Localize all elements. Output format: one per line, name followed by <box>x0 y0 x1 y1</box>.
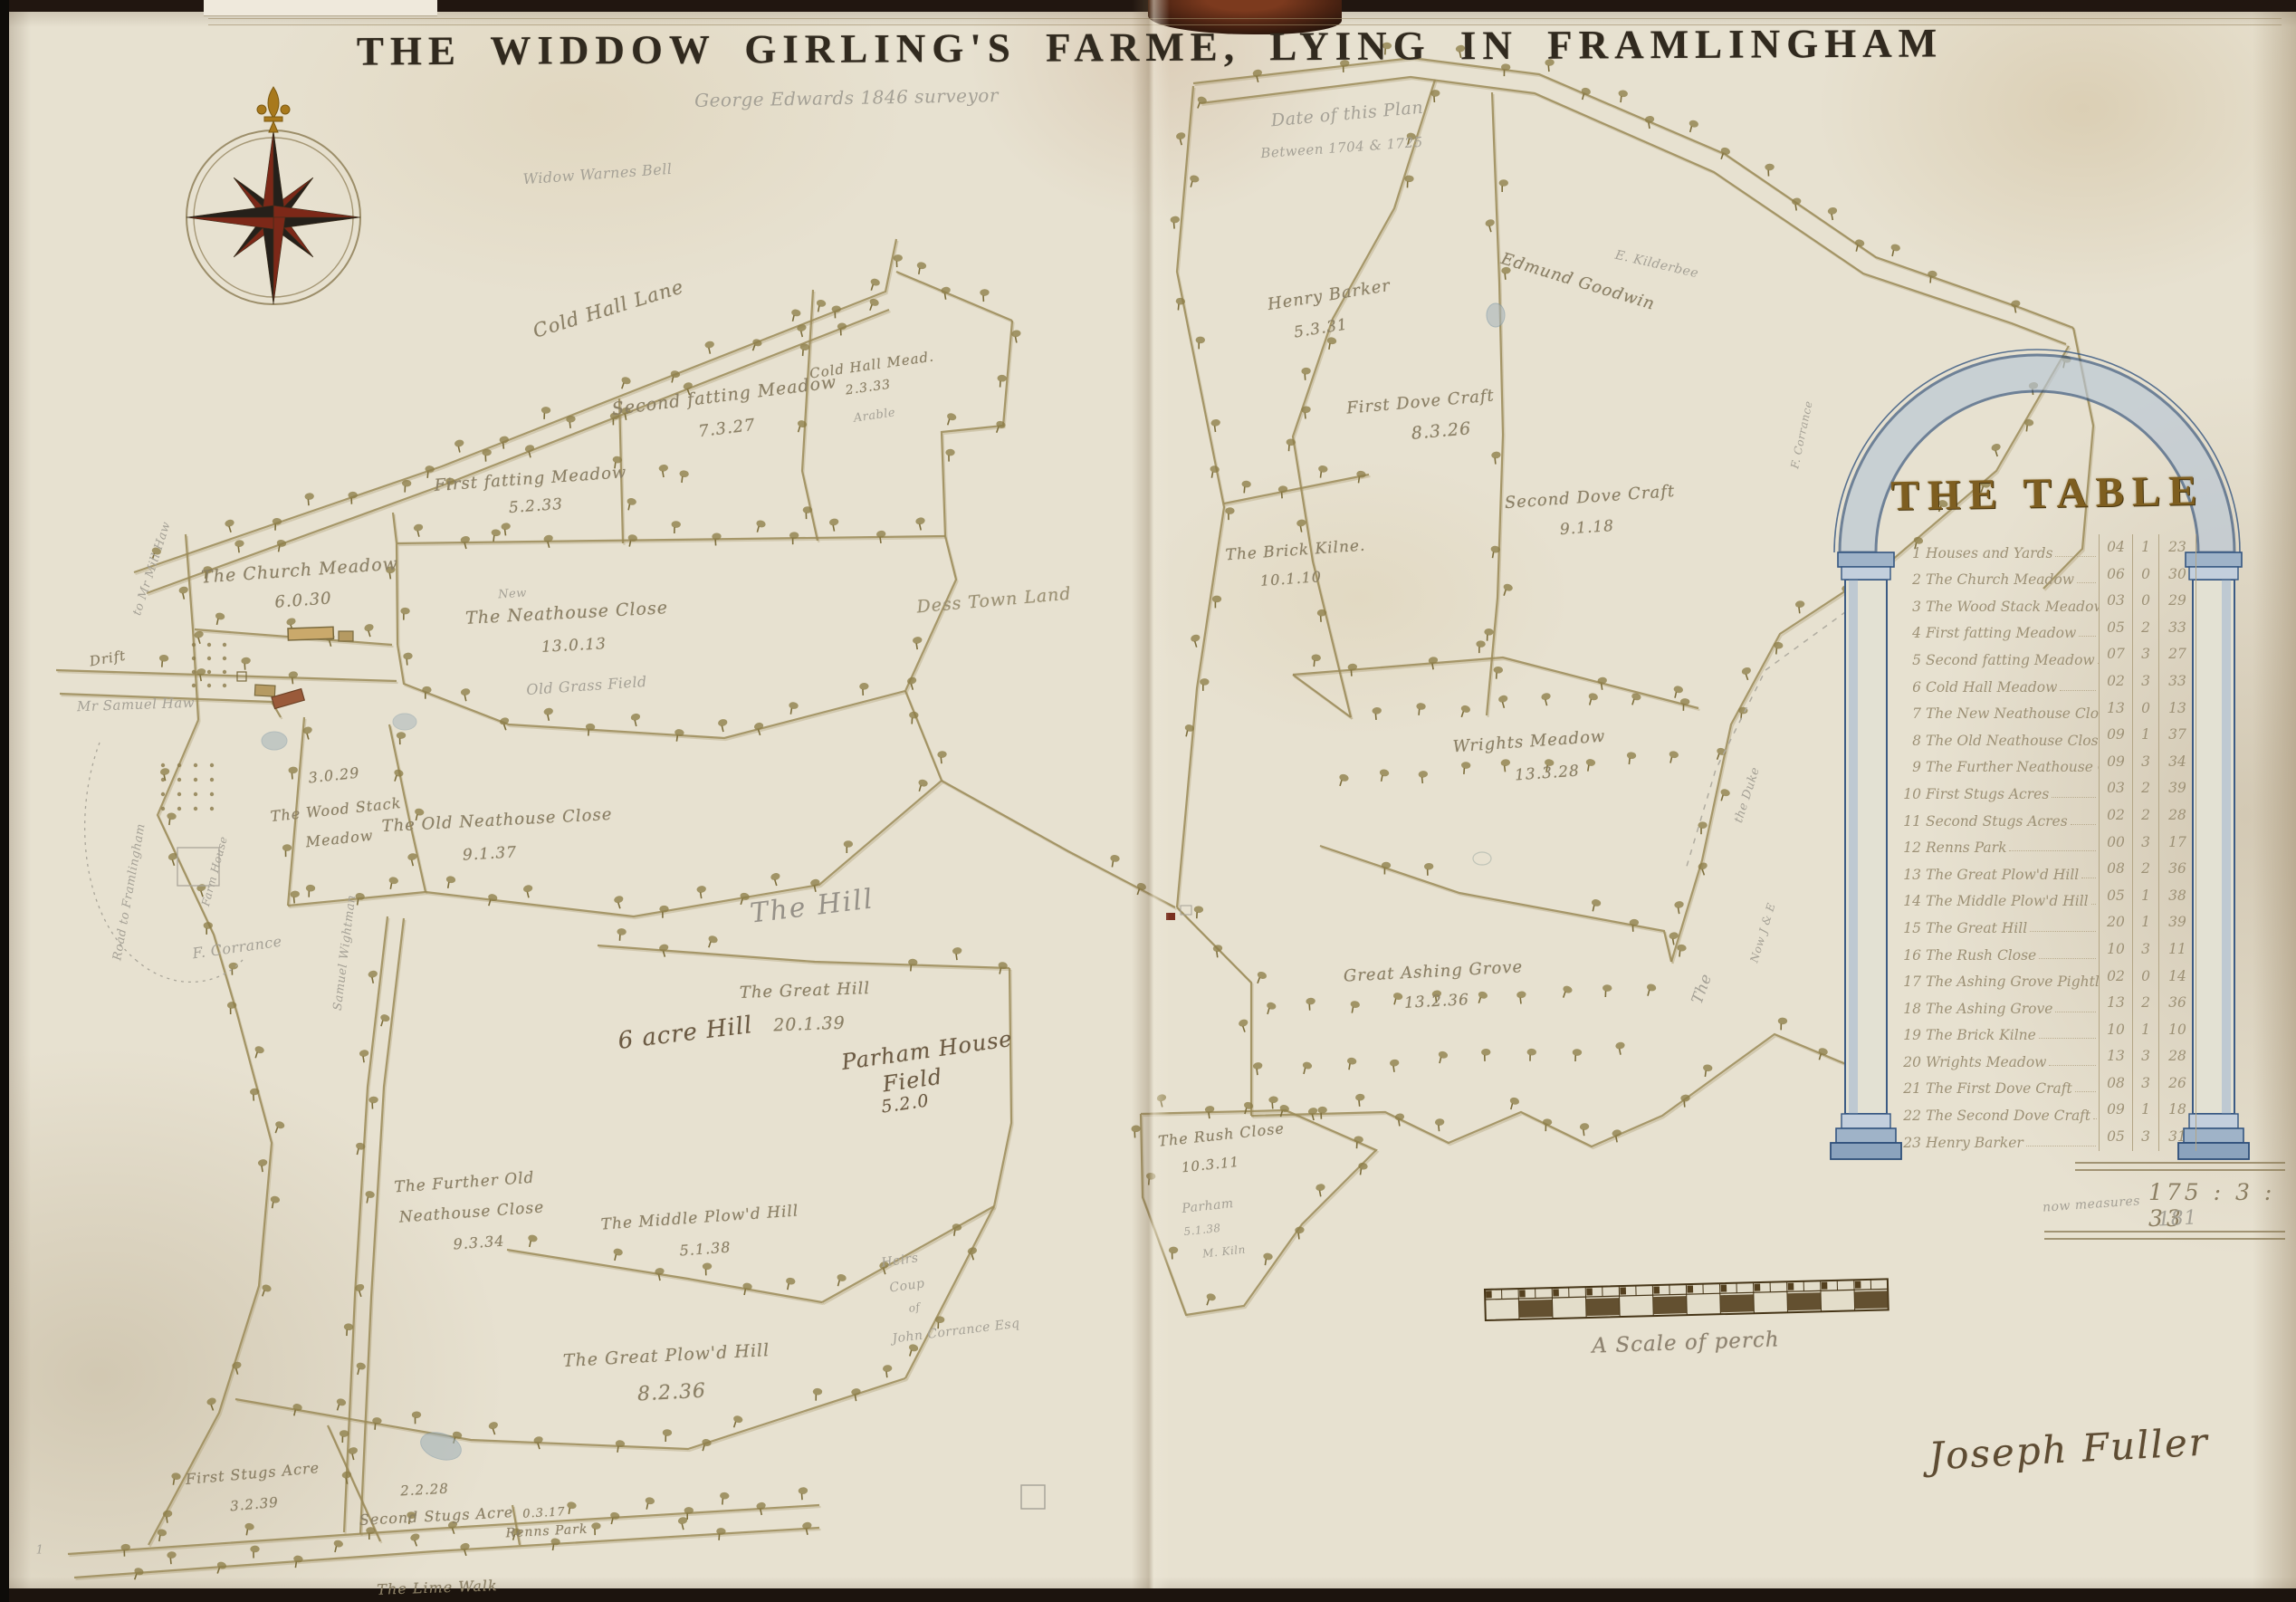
row-name: The Rush Close <box>1926 947 2099 964</box>
paper-slip <box>204 0 437 16</box>
row-number: 6 <box>1896 679 1926 695</box>
dot-leader <box>2052 786 2096 798</box>
row-acres: 08 <box>2099 856 2132 883</box>
row-number: 4 <box>1896 625 1926 641</box>
row-name: Second Stugs Acres <box>1926 813 2099 830</box>
dot-leader <box>2049 1054 2096 1066</box>
row-perches: 31 <box>2158 1124 2196 1151</box>
pencil-note-new-prefix: New <box>498 587 527 602</box>
field-label-church-meadow: 6.0.30 <box>274 589 333 611</box>
border-rule <box>208 18 2282 19</box>
table-row: 15The Great Hill20139 <box>1896 909 2196 936</box>
row-roods: 1 <box>2132 722 2158 749</box>
dot-leader <box>2055 1001 2096 1012</box>
row-number: 12 <box>1896 839 1926 856</box>
table-row: 6Cold Hall Meadow02333 <box>1896 668 2196 695</box>
table-row: 17The Ashing Grove Pightle02014 <box>1896 964 2196 991</box>
field-label-great-plowd-hill: 8.2.36 <box>636 1380 706 1406</box>
field-label-first-fatting-meadow: 5.2.33 <box>508 495 563 517</box>
row-roods: 3 <box>2132 749 2158 776</box>
field-label-great-hill: 20.1.39 <box>773 1013 846 1036</box>
row-name: The Great Plow'd Hill <box>1926 867 2099 883</box>
table-row: 10First Stugs Acres03239 <box>1896 775 2196 802</box>
table-row: 11Second Stugs Acres02228 <box>1896 802 2196 830</box>
row-roods: 3 <box>2132 936 2158 964</box>
row-number: 8 <box>1896 733 1926 749</box>
estate-map-page: THE WIDDOW GIRLING'S FARME, LYING IN FRA… <box>0 0 2296 1602</box>
pond-icon <box>262 732 287 750</box>
row-number: 22 <box>1896 1108 1926 1124</box>
row-perches: 27 <box>2158 641 2196 668</box>
pond-icon <box>393 714 416 730</box>
field-label-middle-plowd-hill: 5.1.38 <box>679 1239 732 1260</box>
page-fold <box>1132 0 1170 1602</box>
row-name: The Wood Stack Meadow <box>1926 599 2099 615</box>
row-number: 16 <box>1896 947 1926 964</box>
row-number: 11 <box>1896 813 1926 830</box>
row-roods: 0 <box>2132 588 2158 615</box>
dot-leader <box>2060 679 2096 691</box>
row-roods: 3 <box>2132 830 2158 857</box>
row-number: 21 <box>1896 1080 1926 1097</box>
row-roods: 0 <box>2132 561 2158 589</box>
table-row: 13The Great Plow'd Hill08236 <box>1896 856 2196 883</box>
row-number: 13 <box>1896 867 1926 883</box>
row-name: Renns Park <box>1926 839 2099 856</box>
row-name: The Old Neathouse Close <box>1926 733 2099 749</box>
book-edge-left <box>0 0 9 1602</box>
row-roods: 2 <box>2132 802 2158 830</box>
dot-leader <box>2009 839 2096 851</box>
pond-icon <box>1473 852 1491 865</box>
row-acres: 05 <box>2099 883 2132 910</box>
row-acres: 13 <box>2099 1043 2132 1070</box>
row-perches: 39 <box>2158 775 2196 802</box>
row-number: 2 <box>1896 571 1926 588</box>
row-roods: 1 <box>2132 1097 2158 1124</box>
row-roods: 3 <box>2132 1043 2158 1070</box>
row-number: 3 <box>1896 599 1926 615</box>
row-acres: 06 <box>2099 561 2132 589</box>
row-acres: 09 <box>2099 749 2132 776</box>
row-roods: 1 <box>2132 909 2158 936</box>
row-roods: 2 <box>2132 615 2158 642</box>
row-name: The Second Dove Craft <box>1926 1108 2099 1124</box>
row-acres: 20 <box>2099 909 2132 936</box>
row-perches: 37 <box>2158 722 2196 749</box>
row-roods: 0 <box>2132 695 2158 723</box>
row-name: The Brick Kilne <box>1926 1027 2099 1043</box>
dot-leader <box>2075 1080 2096 1092</box>
dot-leader <box>2039 1027 2096 1039</box>
row-acres: 03 <box>2099 775 2132 802</box>
row-name: The Further Neathouse Close <box>1926 759 2099 775</box>
row-acres: 00 <box>2099 830 2132 857</box>
row-name: The Ashing Grove <box>1926 1001 2099 1017</box>
row-acres: 05 <box>2099 1124 2132 1151</box>
field-label-second-dove-craft: 9.1.18 <box>1559 517 1614 539</box>
pencil-square <box>1021 1485 1045 1509</box>
dot-leader <box>2071 813 2096 825</box>
row-number: 20 <box>1896 1054 1926 1070</box>
row-perches: 13 <box>2158 695 2196 723</box>
table-row: 19The Brick Kilne10110 <box>1896 1017 2196 1044</box>
row-roods: 2 <box>2132 775 2158 802</box>
dot-leader <box>2039 947 2096 959</box>
row-number: 7 <box>1896 705 1926 722</box>
dot-leader <box>2098 652 2099 664</box>
dot-leader <box>2030 920 2096 932</box>
table-row: 2The Church Meadow06030 <box>1896 561 2196 589</box>
row-roods: 2 <box>2132 856 2158 883</box>
row-acres: 02 <box>2099 668 2132 695</box>
table-row: 8The Old Neathouse Close09137 <box>1896 722 2196 749</box>
row-number: 17 <box>1896 974 1926 990</box>
book-edge-bottom <box>0 1588 2296 1602</box>
row-perches: 29 <box>2158 588 2196 615</box>
row-roods: 3 <box>2132 668 2158 695</box>
row-roods: 3 <box>2132 1070 2158 1098</box>
row-number: 10 <box>1896 786 1926 802</box>
row-acres: 03 <box>2099 588 2132 615</box>
row-number: 14 <box>1896 893 1926 909</box>
row-perches: 11 <box>2158 936 2196 964</box>
table-row: 21The First Dove Craft08326 <box>1896 1070 2196 1098</box>
row-acres: 10 <box>2099 936 2132 964</box>
row-name: Henry Barker <box>1926 1135 2099 1151</box>
field-label-renns-park: 0.3.17 <box>522 1505 566 1520</box>
row-number: 5 <box>1896 652 1926 668</box>
row-name: The First Dove Craft <box>1926 1080 2099 1097</box>
table-row: 5Second fatting Meadow07327 <box>1896 641 2196 668</box>
row-acres: 09 <box>2099 722 2132 749</box>
row-perches: 39 <box>2158 909 2196 936</box>
row-number: 18 <box>1896 1001 1926 1017</box>
row-name: Houses and Yards <box>1926 545 2099 561</box>
row-acres: 13 <box>2099 695 2132 723</box>
row-roods: 3 <box>2132 641 2158 668</box>
page-number: 1 <box>36 1544 44 1558</box>
row-name: The New Neathouse Close <box>1926 705 2099 722</box>
row-name: The Ashing Grove Pightle <box>1926 974 2099 990</box>
dot-leader <box>2079 625 2096 637</box>
field-label-great-ashing-grove: 13.2.36 <box>1404 991 1470 1012</box>
row-acres: 02 <box>2099 802 2132 830</box>
row-perches: 30 <box>2158 561 2196 589</box>
row-number: 19 <box>1896 1027 1926 1043</box>
field-label-second-stugs-acre: 2.2.28 <box>400 1481 450 1500</box>
table-body: 1Houses and Yards041232The Church Meadow… <box>1896 534 2196 1151</box>
row-name: The Middle Plow'd Hill <box>1926 893 2099 909</box>
row-name: First fatting Meadow <box>1926 625 2099 641</box>
row-acres: 05 <box>2099 615 2132 642</box>
row-perches: 33 <box>2158 615 2196 642</box>
row-name: The Church Meadow <box>1926 571 2099 588</box>
row-acres: 09 <box>2099 1097 2132 1124</box>
dot-leader <box>2077 571 2096 583</box>
row-perches: 26 <box>2158 1070 2196 1098</box>
row-perches: 36 <box>2158 856 2196 883</box>
dot-leader <box>2093 1108 2097 1119</box>
row-acres: 07 <box>2099 641 2132 668</box>
dot-leader <box>2091 893 2096 905</box>
row-roods: 1 <box>2132 883 2158 910</box>
row-perches: 14 <box>2158 964 2196 991</box>
row-perches: 34 <box>2158 749 2196 776</box>
compass-rose-icon <box>187 87 360 304</box>
row-roods: 3 <box>2132 1124 2158 1151</box>
dot-leader <box>2055 545 2096 557</box>
row-name: The Great Hill <box>1926 920 2099 936</box>
row-number: 1 <box>1896 545 1926 561</box>
row-name: Wrights Meadow <box>1926 1054 2099 1070</box>
table-row: 9The Further Neathouse Close09334 <box>1896 749 2196 776</box>
row-acres: 02 <box>2099 964 2132 991</box>
row-acres: 13 <box>2099 990 2132 1017</box>
table-row: 3The Wood Stack Meadow03029 <box>1896 588 2196 615</box>
table-row: 14The Middle Plow'd Hill05138 <box>1896 883 2196 910</box>
field-label-new-neathouse-close: 13.0.13 <box>541 635 607 657</box>
row-roods: 1 <box>2132 534 2158 561</box>
table-row: 4First fatting Meadow05233 <box>1896 615 2196 642</box>
row-acres: 10 <box>2099 1017 2132 1044</box>
table-row: 18The Ashing Grove13236 <box>1896 990 2196 1017</box>
row-perches: 28 <box>2158 1043 2196 1070</box>
table-row: 23Henry Barker05331 <box>1896 1124 2196 1151</box>
row-perches: 18 <box>2158 1097 2196 1124</box>
scale-bar <box>1485 1279 1889 1320</box>
total-pencil-value: 181 <box>2157 1206 2198 1231</box>
dot-leader <box>2026 1135 2096 1146</box>
row-name: Second fatting Meadow <box>1926 652 2099 668</box>
dot-leader <box>2081 867 2096 878</box>
row-perches: 10 <box>2158 1017 2196 1044</box>
row-roods: 0 <box>2132 964 2158 991</box>
row-perches: 38 <box>2158 883 2196 910</box>
row-roods: 2 <box>2132 990 2158 1017</box>
field-label-further-old-neathouse-close: 9.3.34 <box>453 1233 505 1253</box>
field-label-old-neathouse-close: 9.1.37 <box>462 843 517 864</box>
table-row: 7The New Neathouse Close13013 <box>1896 695 2196 723</box>
fleur-de-lis-icon <box>257 87 290 132</box>
table-row: 12Renns Park00317 <box>1896 830 2196 857</box>
row-perches: 33 <box>2158 668 2196 695</box>
pond-icon <box>1487 303 1505 327</box>
row-acres: 08 <box>2099 1070 2132 1098</box>
table-row: 16The Rush Close10311 <box>1896 936 2196 964</box>
map-title: THE WIDDOW GIRLING'S FARME, LYING IN FRA… <box>357 19 1943 74</box>
row-perches: 28 <box>2158 802 2196 830</box>
row-perches: 23 <box>2158 534 2196 561</box>
row-perches: 17 <box>2158 830 2196 857</box>
field-boundaries <box>56 58 2095 1579</box>
row-name: Cold Hall Meadow <box>1926 679 2099 695</box>
row-number: 9 <box>1896 759 1926 775</box>
farmstead-buildings <box>237 627 353 708</box>
row-number: 15 <box>1896 920 1926 936</box>
row-perches: 36 <box>2158 990 2196 1017</box>
row-name: First Stugs Acres <box>1926 786 2099 802</box>
table-title: THE TABLE <box>1890 466 2205 521</box>
row-roods: 1 <box>2132 1017 2158 1044</box>
row-acres: 04 <box>2099 534 2132 561</box>
table-row: 20Wrights Meadow13328 <box>1896 1043 2196 1070</box>
pencil-note-heirs-3: of <box>908 1300 921 1315</box>
table-row: 1Houses and Yards04123 <box>1896 534 2196 561</box>
row-number: 23 <box>1896 1135 1926 1151</box>
table-row: 22The Second Dove Craft09118 <box>1896 1097 2196 1124</box>
